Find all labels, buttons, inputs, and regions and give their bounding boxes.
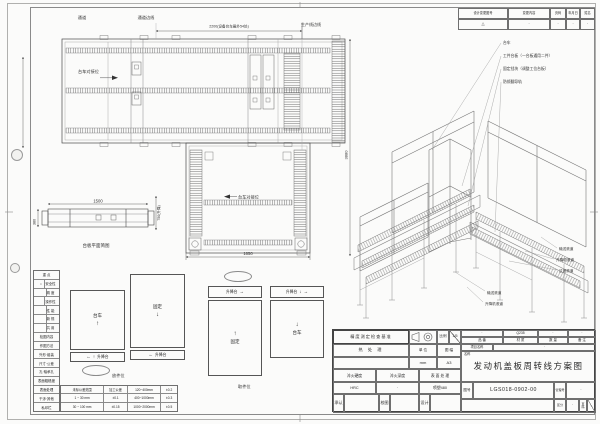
checklist-row-drawing-method: 作图方法 xyxy=(34,342,59,351)
fixed-label: 固定 xyxy=(231,339,240,345)
checklist-row-new: 新 规 xyxy=(34,315,59,324)
checklist-label: 私印栏 xyxy=(41,405,51,410)
turn-loop-unload xyxy=(224,271,252,282)
iso-label-conveyor-track-l: 输送滚道 xyxy=(487,290,502,295)
checklist-section-label: 检图内容 xyxy=(40,334,54,339)
checklist-row-common: 共 用 xyxy=(34,324,59,333)
caster-left xyxy=(192,241,198,247)
title-block: 精度测定检查基准 比例 1/5 热 处 理 单 位 图 幅 mm A3 淬火硬度… xyxy=(332,329,595,412)
iso-view xyxy=(354,43,588,322)
label-aisle-edge: 通道边线 xyxy=(138,14,156,21)
checklist-mark-empty xyxy=(39,324,47,332)
checklist-row-surface: 表面处理 xyxy=(34,386,59,395)
drawing-sheet: 通道 通道边线 2200(设备台车最外54处) 生产线边线 台车对接位 台车对接… xyxy=(0,0,600,424)
checklist-label: 尺寸·公差 xyxy=(39,361,54,366)
checklist-mark-empty xyxy=(39,306,47,314)
qty-value: · xyxy=(538,330,568,337)
checklist-label: 干涉·其他 xyxy=(39,396,54,401)
checklist-label: 操作性 xyxy=(45,299,55,304)
tolerance-cell: ±0.15 xyxy=(104,403,128,411)
revision-header-date: 年月日 xyxy=(566,8,580,19)
unload-position-caption: 取件位 xyxy=(238,384,251,390)
checklist-label: 孔·轴承孔 xyxy=(39,369,54,374)
tolerance-table: 未标公差范围 加工公差 120~400mm ±0.2 1 ~ 30 mm ±0.… xyxy=(60,385,178,412)
label-prod-edge: 生产线边线 xyxy=(301,21,321,27)
label-aisle: 通道 xyxy=(78,14,87,21)
iso-label-transition-track: 过渡滚道 xyxy=(559,268,574,273)
checklist-label: 表面处理 xyxy=(40,387,54,392)
check-standard-title: 精度测定检查基准 xyxy=(333,330,409,344)
arrow-up-icon: ↑ xyxy=(93,355,95,360)
iso-label-fixed-stop: 固定挡块（调整工位台板） xyxy=(503,66,549,71)
drawing-number-label: 图号 xyxy=(461,382,473,399)
revision-header-name: 姓名 xyxy=(580,8,595,19)
checklist-row-operability: 操作性 xyxy=(34,297,59,306)
scale-label: 比例 xyxy=(437,330,449,344)
checklist-row-holes: 孔·轴承孔 xyxy=(34,368,59,377)
checklist-label: 外形·组装 xyxy=(39,352,54,357)
name-label: 名称 xyxy=(464,353,470,356)
checklist-mark-empty xyxy=(39,289,47,297)
drawing-name-cell: 名称 发动机盖板周转线方案图 xyxy=(461,351,596,382)
tolerance-cell: ±0.3 xyxy=(161,394,177,402)
turn-loop-load xyxy=(82,365,110,376)
arrow-right-icon: → xyxy=(304,290,309,295)
tolerance-row: 1 ~ 30 mm ±0.1 400~1000mm ±0.3 xyxy=(61,394,177,402)
partno-label: 品 番 xyxy=(461,337,503,344)
checklist-row-seal: 私印栏 xyxy=(34,403,59,411)
check-label: 校图 xyxy=(379,394,390,413)
project-name-label: 项目名称 xyxy=(461,344,493,351)
design-label: 设计 xyxy=(419,394,430,413)
arrow-right-icon: → xyxy=(239,290,244,295)
checklist-label: 表面粗糙度 xyxy=(38,378,55,383)
hardness-label: 淬火硬度 xyxy=(333,369,376,382)
platform-view xyxy=(42,209,154,227)
dock-arrow-1 xyxy=(112,76,118,81)
lift-label: 升降台 xyxy=(286,290,297,295)
mgmt-number-value: · xyxy=(566,382,596,399)
arrow-up-icon: ↑ xyxy=(234,331,237,337)
tolerance-cell: ±0.5 xyxy=(161,403,177,411)
iso-label-workpiece-plate: 工件台板（一台板通用二件） xyxy=(503,53,552,58)
checklist-header: 重 点 xyxy=(34,271,59,280)
arrow-up-icon: ↑ xyxy=(96,321,99,327)
dim-2200: 2200(设备台车最外54处) xyxy=(209,24,249,29)
arrow-down-icon: ↓ xyxy=(156,312,159,318)
checklist-label: 性 能 xyxy=(47,308,55,313)
detail-box-cart-load: 台车 ↑ xyxy=(70,290,125,350)
arrow-down-icon: ↓ xyxy=(299,290,301,295)
material-value: Q235 xyxy=(503,330,538,337)
checklist-mark-empty xyxy=(39,315,47,323)
mgmt-number-label: 管理号 xyxy=(554,382,566,399)
tolerance-cell: 400~1000mm xyxy=(128,394,161,402)
revision-value-date: · xyxy=(566,19,580,30)
drawing-number-value: LGS018-0902-00 xyxy=(473,382,554,399)
platform-caption: 台板平面简图 xyxy=(83,242,110,249)
checklist-label: 精 度 xyxy=(47,290,55,295)
revision-header-dwg-change-no: 设计变更图号 xyxy=(458,8,508,19)
tolerance-cell: 30 ~ 100 mm xyxy=(61,403,104,411)
detail-strip-lift-load: ← ↑ 升降台 xyxy=(70,352,125,362)
tolerance-cell: 1000~2000mm xyxy=(128,403,161,411)
revision-header-page: 页码 xyxy=(550,8,566,19)
depth-label: 淬火深度 xyxy=(376,369,419,382)
checklist-label: 共 用 xyxy=(47,325,55,330)
load-position-caption: 放件位 xyxy=(112,373,125,379)
scale-value: 1/5 xyxy=(449,330,461,344)
dim-1650: 1650 xyxy=(243,251,253,256)
checklist-label: 新 规 xyxy=(47,316,55,321)
detail-box-fixed-1: 固定 ↓ xyxy=(130,274,185,348)
arrow-left-icon: ← xyxy=(86,355,91,360)
remark-label: 备 注 xyxy=(568,337,596,344)
dim-3880: 3880 xyxy=(344,150,349,160)
depth-value: · xyxy=(376,382,419,394)
heat-treatment-value xyxy=(333,357,409,369)
detail-box-cart-unload: ↓ 台车 xyxy=(270,300,324,358)
third-angle-projection-icon xyxy=(410,331,436,343)
design-signature xyxy=(430,394,461,413)
label-dock-2: 台车对接位 xyxy=(238,194,259,201)
format-value: A3 xyxy=(437,357,461,369)
iso-label-anti-tip-rail: 防倾翻导轨 xyxy=(503,79,522,84)
checklist-label: 作图方法 xyxy=(40,343,54,348)
hardness-value: HRC xyxy=(333,382,376,394)
tolerance-cell: 加工公差 xyxy=(104,386,128,394)
page-label: 页码 xyxy=(579,399,587,413)
heat-treatment-label: 热 处 理 xyxy=(333,344,409,357)
format-label: 图 幅 xyxy=(437,344,461,357)
checklist-row-interference: 干涉·其他 xyxy=(34,394,59,403)
qty-label: 数 量 xyxy=(538,337,568,344)
arrow-down-icon: ↓ xyxy=(296,322,299,328)
revision-header-content: 变更内容 xyxy=(508,8,550,19)
project-name-value: · xyxy=(493,344,596,351)
tolerance-cell: 120~400mm xyxy=(128,386,161,394)
label-dock-1: 台车对接位 xyxy=(78,68,99,75)
checklist-header-label: 重 点 xyxy=(43,272,51,277)
checklist-row-roughness: 表面粗糙度 xyxy=(34,377,59,386)
checklist-row-performance: 性 能 xyxy=(34,306,59,315)
iso-label-cart: 台车 xyxy=(503,40,511,45)
class-label: 区分 xyxy=(554,399,566,413)
lift-label: 升降台 xyxy=(155,353,166,358)
tolerance-row: 30 ~ 100 mm ±0.15 1000~2000mm ±0.5 xyxy=(61,403,177,411)
checklist-table: 重 点 ○安全性 精 度 操作性 性 能 新 规 共 用 检图内容 作图方法 外… xyxy=(33,270,60,412)
checklist-label: 安全性 xyxy=(45,281,55,286)
surface-treatment-label: 表 面 处 理 xyxy=(419,369,461,382)
lift-label: 升降台 xyxy=(226,290,237,295)
unit-value: mm xyxy=(409,357,437,369)
arrow-left-icon: ← xyxy=(149,353,154,358)
checklist-mark: ○ xyxy=(37,280,45,288)
page-value-cell xyxy=(587,399,596,413)
partno-value: · xyxy=(461,330,503,337)
iso-label-lift-track-r: 升降机滚道 xyxy=(556,257,574,262)
caster-right xyxy=(298,241,304,247)
projection-symbol-cell xyxy=(409,330,437,344)
detail-strip-lift-4: 升降台 ↓ → xyxy=(270,286,324,298)
dock-arrow-2 xyxy=(224,195,230,199)
iso-label-lift-track-l: 升降机滚道 xyxy=(485,301,503,306)
approve-label: 承认 xyxy=(333,394,344,413)
dim-750: 750(升降) xyxy=(156,205,161,221)
revision-value-page: · xyxy=(550,19,566,30)
cart-label: 台车 xyxy=(293,330,302,336)
surface-treatment-value: 喷塑480 xyxy=(419,382,461,394)
cart-label: 台车 xyxy=(93,313,102,319)
revision-mark: △ xyxy=(458,19,508,30)
checklist-row-precision: 精 度 xyxy=(34,289,59,298)
iso-label-conveyor-track-r: 输送滚道 xyxy=(559,246,574,251)
checklist-row-outline: 外形·组装 xyxy=(34,350,59,359)
tolerance-cell: 未标公差范围 xyxy=(61,386,104,394)
lift-label: 升降台 xyxy=(97,355,108,360)
bottom-blank-cell xyxy=(461,399,554,413)
checklist-row-safety: ○安全性 xyxy=(34,280,59,289)
checklist-mark-empty xyxy=(37,297,45,305)
dim-380: 380 xyxy=(33,219,37,225)
tolerance-cell: ±0.2 xyxy=(161,386,177,394)
dim-1500: 1500 xyxy=(93,199,103,204)
tolerance-cell: ±0.1 xyxy=(104,394,128,402)
detail-box-fixed-2: ↑ 固定 xyxy=(208,300,262,376)
checklist-section-header: 检图内容 xyxy=(34,333,59,342)
approve-signature xyxy=(344,394,379,413)
revision-value-content: · xyxy=(508,19,550,30)
fixed-label: 固定 xyxy=(153,304,162,310)
detail-strip-lift-3: 升降台 → xyxy=(208,286,262,298)
drawing-title: 发动机盖板周转线方案图 xyxy=(473,362,583,371)
tolerance-cell: 1 ~ 30 mm xyxy=(61,394,104,402)
detail-strip-lift-2: ← 升降台 xyxy=(130,350,185,360)
remark-value: · xyxy=(568,330,596,337)
checklist-row-dimension: 尺寸·公差 xyxy=(34,359,59,368)
material-label: 材 质 xyxy=(503,337,538,344)
class-value: · xyxy=(566,399,579,413)
tolerance-row: 未标公差范围 加工公差 120~400mm ±0.2 xyxy=(61,386,177,394)
revision-value-name: · xyxy=(580,19,595,30)
check-signature xyxy=(390,394,419,413)
unit-label: 单 位 xyxy=(409,344,437,357)
